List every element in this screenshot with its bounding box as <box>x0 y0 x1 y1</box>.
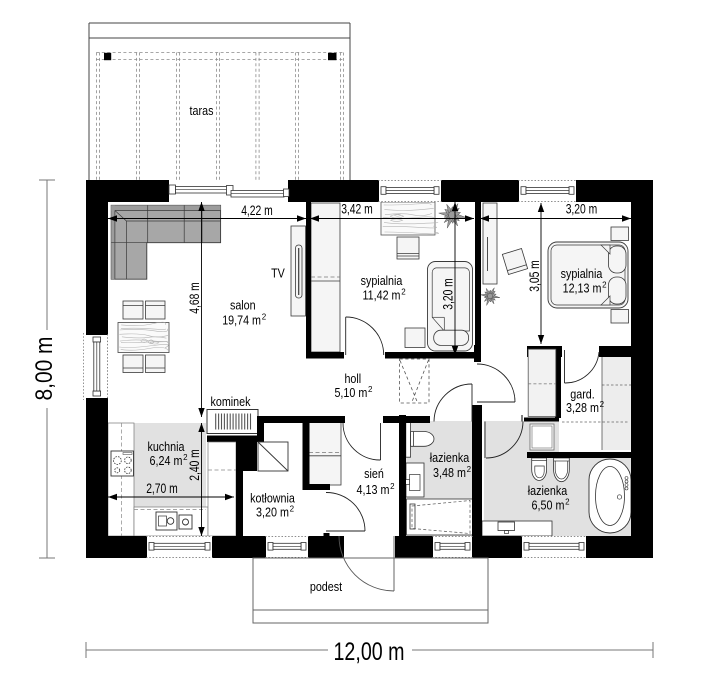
svg-text:12,13 m: 12,13 m <box>563 282 602 296</box>
svg-text:2: 2 <box>390 482 395 491</box>
svg-text:kominek: kominek <box>211 395 252 409</box>
svg-text:19,74 m: 19,74 m <box>222 313 261 327</box>
svg-text:sień: sień <box>364 467 384 481</box>
svg-text:2: 2 <box>602 281 607 290</box>
svg-text:3,05 m: 3,05 m <box>527 260 542 292</box>
svg-text:4,68 m: 4,68 m <box>187 282 202 314</box>
svg-text:kuchnia: kuchnia <box>147 440 184 454</box>
svg-text:2: 2 <box>565 498 570 507</box>
svg-text:3,20 m: 3,20 m <box>256 506 289 520</box>
svg-text:3,28 m: 3,28 m <box>566 401 599 415</box>
svg-text:6,50 m: 6,50 m <box>532 499 565 513</box>
svg-text:3,20 m: 3,20 m <box>566 202 598 217</box>
svg-text:3,42 m: 3,42 m <box>341 202 373 217</box>
svg-text:2: 2 <box>600 400 605 409</box>
svg-text:2,70 m: 2,70 m <box>146 481 178 496</box>
svg-text:salon: salon <box>230 299 256 313</box>
svg-text:6,24 m: 6,24 m <box>150 454 183 468</box>
svg-text:4,22 m: 4,22 m <box>241 203 273 218</box>
svg-text:holl: holl <box>344 372 361 386</box>
svg-text:2: 2 <box>262 312 267 321</box>
svg-text:łazienka: łazienka <box>528 484 567 498</box>
svg-text:2: 2 <box>290 505 295 514</box>
svg-text:4,13 m: 4,13 m <box>357 483 390 497</box>
svg-text:8,00 m: 8,00 m <box>31 337 58 401</box>
svg-text:2: 2 <box>467 465 472 474</box>
svg-text:12,00 m: 12,00 m <box>334 638 405 666</box>
svg-text:sypialnia: sypialnia <box>361 274 403 288</box>
svg-text:2: 2 <box>368 385 373 394</box>
svg-text:2,40 m: 2,40 m <box>187 449 202 481</box>
svg-text:2: 2 <box>401 288 406 297</box>
svg-text:TV: TV <box>271 267 285 281</box>
svg-text:5,10 m: 5,10 m <box>334 386 367 400</box>
svg-text:3,48 m: 3,48 m <box>433 466 466 480</box>
svg-text:3,20 m: 3,20 m <box>440 278 455 310</box>
svg-text:gard.: gard. <box>570 388 595 402</box>
svg-text:sypialnia: sypialnia <box>561 267 603 281</box>
svg-text:podest: podest <box>310 580 343 594</box>
svg-text:łazienka: łazienka <box>430 451 469 465</box>
svg-text:11,42 m: 11,42 m <box>363 289 401 303</box>
svg-text:taras: taras <box>190 104 214 118</box>
svg-text:kotłownia: kotłownia <box>250 492 295 506</box>
